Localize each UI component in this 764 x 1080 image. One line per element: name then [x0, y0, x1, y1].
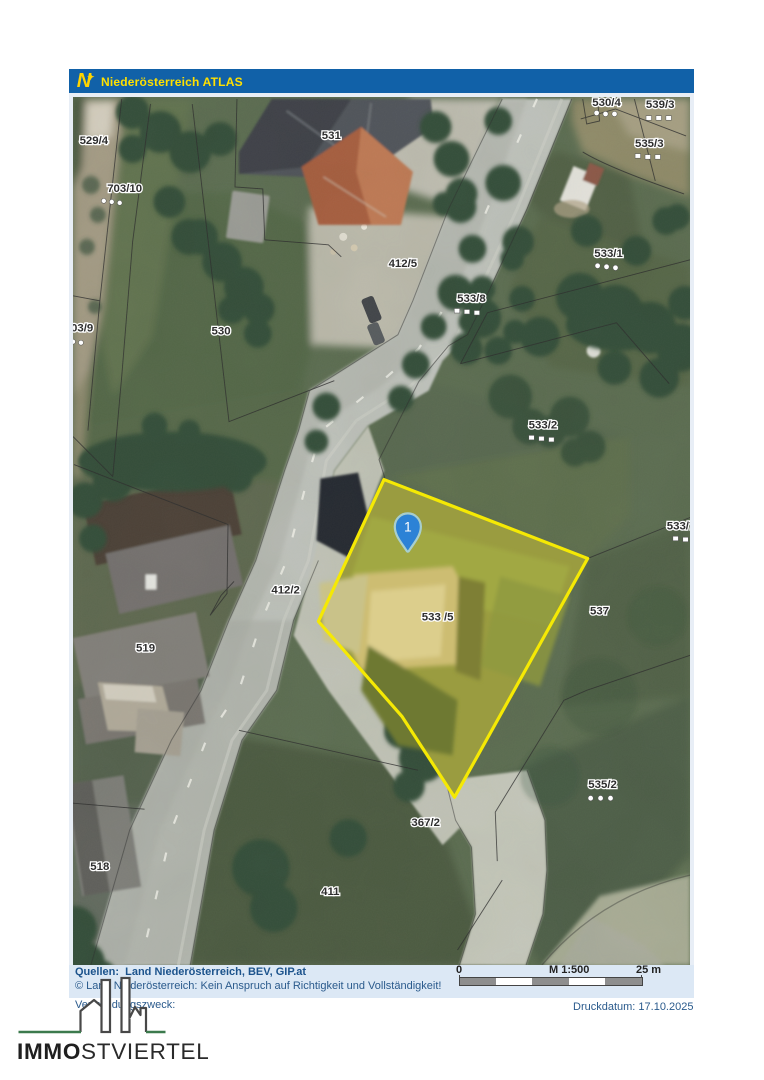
- svg-text:519: 519: [136, 642, 155, 654]
- svg-text:411: 411: [321, 886, 340, 898]
- svg-text:537: 537: [590, 605, 609, 617]
- svg-text:530: 530: [212, 326, 231, 338]
- svg-text:703/9: 703/9: [73, 323, 93, 335]
- svg-text:518: 518: [90, 861, 110, 873]
- svg-text:533/1: 533/1: [594, 248, 623, 260]
- svg-text:535/2: 535/2: [588, 779, 617, 791]
- svg-text:529/4: 529/4: [80, 135, 109, 147]
- svg-text:1: 1: [404, 518, 412, 534]
- svg-text:533/7: 533/7: [667, 520, 690, 532]
- svg-text:412/2: 412/2: [271, 584, 300, 596]
- svg-text:539/3: 539/3: [646, 99, 675, 111]
- svg-text:367/2: 367/2: [411, 817, 440, 829]
- svg-text:535/3: 535/3: [635, 138, 664, 150]
- svg-text:533/2: 533/2: [529, 420, 558, 432]
- svg-text:533/8: 533/8: [457, 293, 486, 305]
- svg-text:531: 531: [322, 130, 342, 142]
- svg-text:412/5: 412/5: [389, 258, 418, 270]
- svg-text:530/4: 530/4: [592, 97, 621, 109]
- svg-text:703/10: 703/10: [107, 183, 142, 195]
- svg-text:533 /5: 533 /5: [422, 611, 454, 623]
